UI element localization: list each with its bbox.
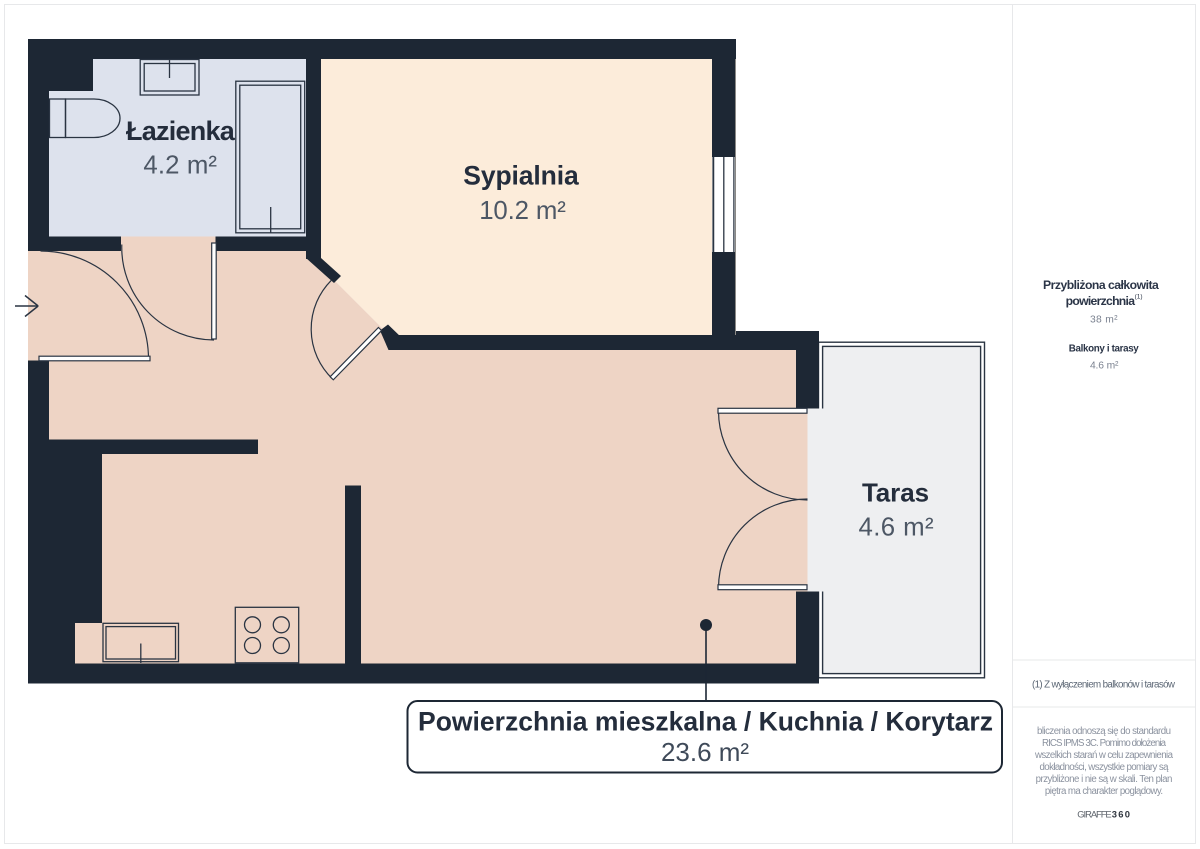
svg-text:Sypialnia: Sypialnia: [463, 160, 579, 190]
svg-text:4.2 m²: 4.2 m²: [143, 152, 217, 180]
svg-text:23.6 m²: 23.6 m²: [661, 737, 749, 767]
svg-text:10.2 m²: 10.2 m²: [479, 197, 566, 225]
svg-text:przybliżone i nie są w skali.: przybliżone i nie są w skali. Ten plan: [1036, 774, 1173, 785]
svg-text:4.6 m²: 4.6 m²: [858, 514, 934, 542]
svg-text:4.6 m²: 4.6 m²: [1090, 360, 1119, 371]
svg-text:powierzchnia: powierzchnia: [1066, 294, 1136, 308]
svg-text:Balkony i tarasy: Balkony i tarasy: [1069, 343, 1140, 354]
svg-text:360: 360: [1112, 808, 1130, 819]
svg-text:Łazienka: Łazienka: [126, 116, 236, 146]
svg-text:GIRAFFE: GIRAFFE: [1077, 808, 1111, 819]
svg-text:Powierzchnia mieszkalna / Kuch: Powierzchnia mieszkalna / Kuchnia / Kory…: [418, 706, 993, 736]
svg-text:(1) Z wyłączeniem balkonów i t: (1) Z wyłączeniem balkonów i tarasów: [1032, 679, 1176, 690]
svg-text:Taras: Taras: [862, 477, 929, 507]
svg-text:dokładności, wszystkie pomiary: dokładności, wszystkie pomiary są: [1040, 762, 1170, 773]
svg-text:RICS IPMS 3C. Pomimo dołożenia: RICS IPMS 3C. Pomimo dołożenia: [1042, 738, 1167, 749]
svg-text:piętra ma charakter poglądowy.: piętra ma charakter poglądowy.: [1045, 786, 1163, 797]
svg-text:wszelkich starań w celu zapewn: wszelkich starań w celu zapewnienia: [1034, 750, 1174, 761]
svg-text:(1): (1): [1135, 294, 1143, 301]
svg-text:bliczenia odnoszą się do stand: bliczenia odnoszą się do standardu: [1037, 726, 1171, 737]
svg-text:38 m²: 38 m²: [1090, 315, 1118, 326]
svg-text:Przybliżona całkowita: Przybliżona całkowita: [1043, 278, 1159, 292]
